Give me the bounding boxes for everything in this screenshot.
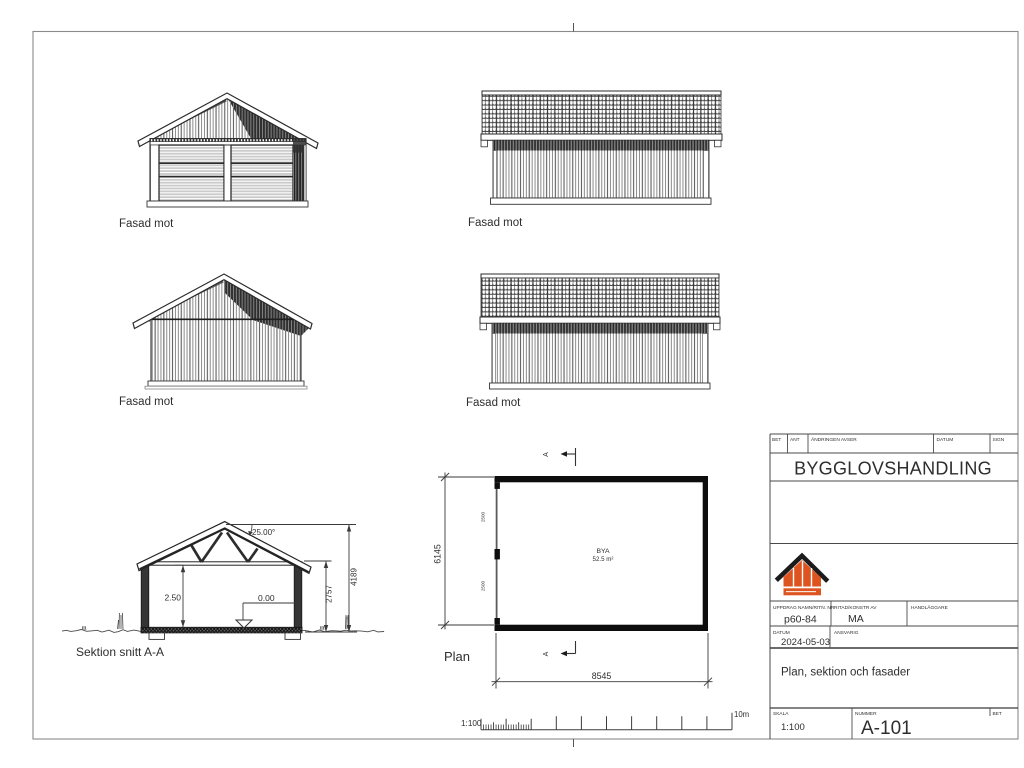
svg-text:SIGN: SIGN [993,437,1005,443]
svg-text:Plan: Plan [444,649,470,664]
svg-text:RITAD/KONSTR AV: RITAD/KONSTR AV [834,605,877,611]
svg-text:52.5 m²: 52.5 m² [593,556,614,563]
svg-text:ANT: ANT [790,437,800,443]
svg-text:A: A [543,651,550,656]
svg-text:1:100: 1:100 [781,722,805,733]
svg-text:A-101: A-101 [861,718,912,739]
svg-text:BYA: BYA [596,548,610,555]
svg-text:HANDLÄGGARE: HANDLÄGGARE [911,604,948,611]
svg-text:MA: MA [848,613,864,625]
svg-text:2500: 2500 [481,580,486,591]
svg-text:DATUM: DATUM [937,437,954,443]
svg-text:Fasad mot: Fasad mot [119,396,174,408]
svg-text:DATUM: DATUM [773,630,790,636]
svg-text:10m: 10m [734,710,749,719]
svg-text:4189: 4189 [350,568,359,586]
svg-text:BET: BET [993,711,1002,717]
svg-text:Fasad mot: Fasad mot [466,397,521,409]
svg-text:1:100: 1:100 [461,719,482,728]
svg-text:Plan, sektion och fasader: Plan, sektion och fasader [781,667,910,679]
svg-text:2757: 2757 [325,585,334,603]
svg-text:2500: 2500 [481,511,486,522]
svg-text:8545: 8545 [592,671,612,681]
svg-text:ANSVARIG: ANSVARIG [834,630,859,636]
svg-text:Fasad mot: Fasad mot [119,218,174,230]
svg-text:BET: BET [772,437,781,443]
svg-text:2024-05-03: 2024-05-03 [781,637,830,648]
svg-text:6145: 6145 [433,544,443,564]
svg-text:UPPDRAG NAMN/RITN. NR: UPPDRAG NAMN/RITN. NR [773,605,835,611]
svg-text:Fasad mot: Fasad mot [468,217,523,229]
svg-text:25.00°: 25.00° [252,528,275,537]
svg-text:Sektion snitt A-A: Sektion snitt A-A [76,645,164,659]
svg-text:NUMMER: NUMMER [855,711,877,717]
svg-text:0.00: 0.00 [258,593,275,603]
svg-text:2.50: 2.50 [164,593,181,603]
svg-text:p60-84: p60-84 [784,614,817,626]
svg-text:A: A [543,452,550,457]
svg-text:SKALA: SKALA [773,711,789,717]
svg-text:ÄNDRINGEN AVSER: ÄNDRINGEN AVSER [811,436,857,443]
svg-text:BYGGLOVSHANDLING: BYGGLOVSHANDLING [794,459,992,479]
